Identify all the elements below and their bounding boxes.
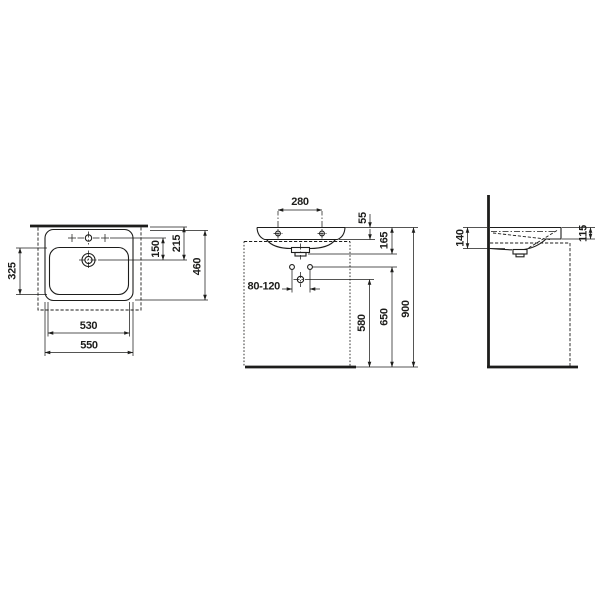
waste-outlet-side xyxy=(513,250,527,255)
bowl-underside-right xyxy=(310,240,336,249)
dim-bowl-width-label: 530 xyxy=(80,320,98,332)
dim-floor-to-rim-label: 900 xyxy=(400,300,412,318)
dim-overall-width: 550 xyxy=(45,340,133,353)
dim-height-at-wall: 140 xyxy=(454,228,505,249)
dim-floor-to-drain: 580 xyxy=(356,280,370,368)
dim-rim-height-label: 55 xyxy=(357,212,369,224)
dim-rim-to-outlet: 165 xyxy=(378,228,392,255)
dim-overall-depth-label: 460 xyxy=(191,258,203,276)
basin-front-profile xyxy=(257,228,345,260)
waste-outlet-flange-side xyxy=(516,254,524,257)
dim-floor-to-rim: 900 xyxy=(400,228,414,368)
dim-height-at-front: 115 xyxy=(562,225,595,242)
dim-bowl-depth-label: 325 xyxy=(6,262,18,280)
fixing-holes-group: 280 xyxy=(274,196,327,239)
dim-bowl-width: 530 xyxy=(48,320,130,333)
hidden-bowl-slope-rear xyxy=(493,233,550,240)
dim-rim-to-outlet-label: 165 xyxy=(378,232,390,250)
dim-taphole-to-drain: 150 xyxy=(150,238,163,260)
dim-rim-height: 55 xyxy=(357,212,370,239)
dim-floor-to-supplies-label: 650 xyxy=(378,308,390,326)
dim-taphole-to-drain-label: 150 xyxy=(150,240,162,258)
basin-side-profile xyxy=(490,228,561,257)
dim-supply-spacing: 80-120 xyxy=(248,270,320,293)
dim-floor-to-supplies: 650 xyxy=(378,267,392,367)
front-view: 280 80-120 xyxy=(244,196,418,367)
dim-fixing-hole-spacing-label: 280 xyxy=(291,196,309,208)
dim-overall-width-label: 550 xyxy=(80,340,98,352)
dim-overall-depth: 460 xyxy=(191,231,205,301)
technical-drawing-canvas: 325 150 215 460 530 550 xyxy=(0,0,600,600)
dim-rear-to-drain: 215 xyxy=(171,227,184,260)
dashed-envelope-side xyxy=(490,243,570,366)
dim-supply-spacing-label: 80-120 xyxy=(248,281,281,293)
dim-rear-to-drain-label: 215 xyxy=(171,235,183,253)
optional-taphole-left-mark xyxy=(68,234,76,242)
washbasin-drawing: 325 150 215 460 530 550 xyxy=(0,0,600,600)
dim-height-at-wall-label: 140 xyxy=(454,229,466,247)
connections-group xyxy=(290,265,397,287)
bowl-underside-left xyxy=(267,240,292,249)
dim-height-at-front-label: 115 xyxy=(577,225,589,242)
water-supply-left xyxy=(290,265,295,270)
water-supply-right xyxy=(308,265,313,270)
dim-bowl-depth: 325 xyxy=(6,248,20,295)
top-view: 325 150 215 460 530 550 xyxy=(6,226,208,356)
hidden-bowl-slope-front xyxy=(526,231,557,250)
side-view: 140 115 xyxy=(454,195,595,367)
dim-fixing-hole-spacing: 280 xyxy=(278,196,322,210)
dim-floor-to-drain-label: 580 xyxy=(356,314,368,332)
optional-taphole-right-mark xyxy=(101,234,109,242)
